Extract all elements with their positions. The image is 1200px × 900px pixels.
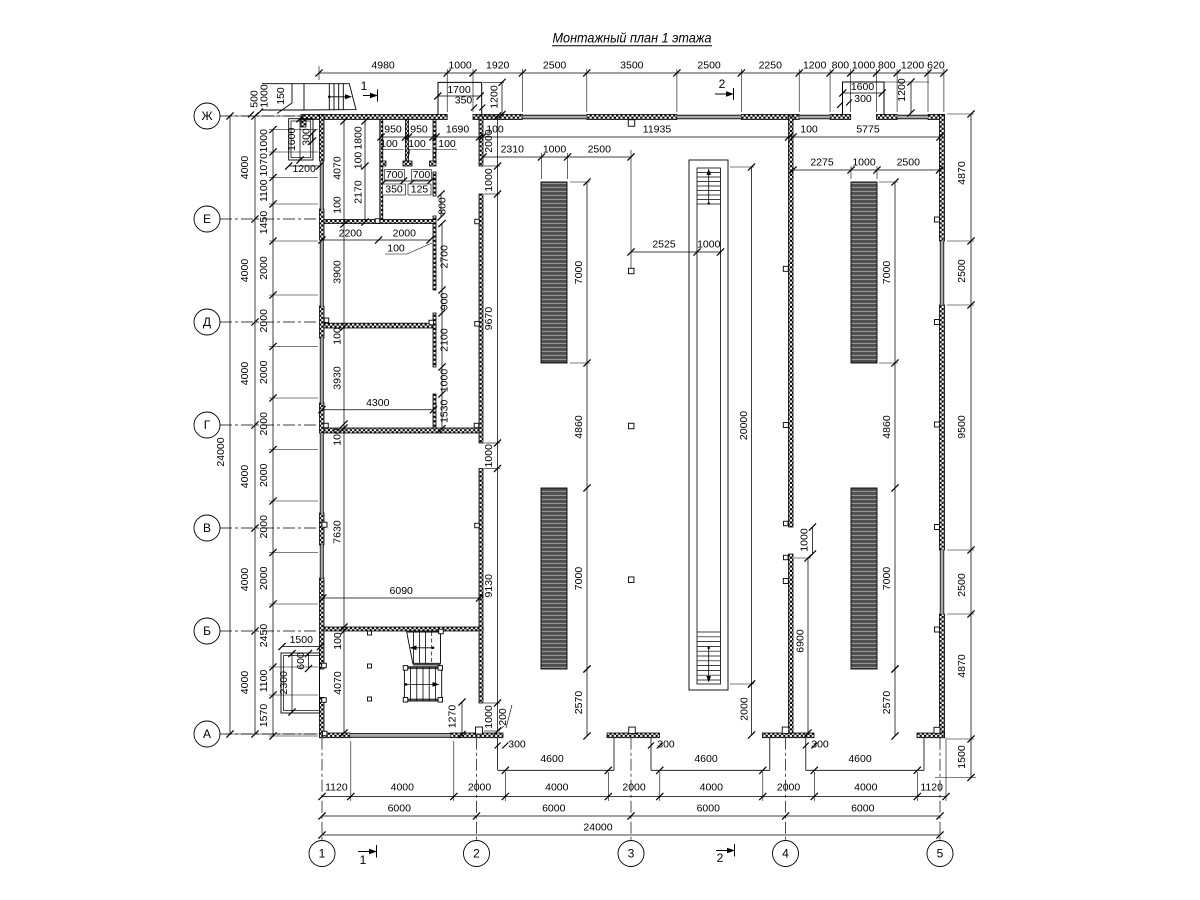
svg-text:600: 600 (295, 652, 307, 670)
svg-text:6090: 6090 (390, 585, 414, 597)
svg-text:5775: 5775 (856, 124, 880, 136)
svg-text:9130: 9130 (483, 574, 495, 598)
svg-text:2100: 2100 (439, 328, 451, 352)
svg-text:11935: 11935 (643, 124, 672, 136)
svg-text:1500: 1500 (290, 634, 314, 646)
svg-text:2700: 2700 (439, 245, 451, 269)
svg-text:100: 100 (438, 138, 456, 150)
svg-text:2570: 2570 (881, 691, 893, 715)
svg-text:1: 1 (319, 847, 326, 861)
svg-text:4600: 4600 (540, 753, 564, 765)
svg-text:800: 800 (832, 60, 850, 72)
svg-text:Д: Д (203, 315, 211, 329)
svg-text:300: 300 (811, 739, 829, 751)
svg-text:4870: 4870 (956, 654, 968, 678)
svg-text:2310: 2310 (501, 144, 525, 156)
svg-text:4000: 4000 (239, 671, 251, 695)
svg-text:1070: 1070 (258, 153, 270, 177)
svg-text:100: 100 (332, 632, 344, 650)
svg-text:1690: 1690 (446, 124, 470, 136)
svg-text:2170: 2170 (353, 180, 365, 204)
svg-text:9670: 9670 (483, 307, 495, 331)
svg-text:4300: 4300 (366, 397, 390, 409)
svg-text:1000: 1000 (852, 157, 876, 169)
svg-text:1600: 1600 (851, 81, 875, 93)
svg-text:Е: Е (203, 212, 211, 226)
svg-text:6000: 6000 (851, 803, 875, 815)
svg-text:300: 300 (657, 739, 675, 751)
svg-text:2000: 2000 (739, 697, 751, 721)
svg-text:1: 1 (360, 853, 367, 867)
svg-text:А: А (203, 727, 211, 741)
svg-text:7000: 7000 (881, 261, 893, 285)
svg-text:1000: 1000 (448, 60, 472, 72)
svg-text:1000: 1000 (483, 444, 495, 468)
svg-text:2500: 2500 (697, 60, 721, 72)
svg-text:1: 1 (361, 79, 368, 93)
svg-text:2450: 2450 (258, 624, 270, 648)
svg-text:2000: 2000 (777, 782, 801, 794)
svg-text:950: 950 (384, 124, 402, 136)
svg-text:1450: 1450 (258, 211, 270, 235)
svg-text:4000: 4000 (239, 156, 251, 180)
svg-text:1000: 1000 (483, 168, 495, 192)
svg-text:4: 4 (782, 847, 789, 861)
svg-text:2: 2 (473, 847, 480, 861)
svg-text:100: 100 (800, 124, 818, 136)
svg-text:6900: 6900 (795, 629, 807, 653)
svg-text:2: 2 (717, 851, 724, 865)
svg-text:6000: 6000 (697, 803, 721, 815)
svg-text:7000: 7000 (573, 261, 585, 285)
svg-text:2000: 2000 (483, 129, 495, 153)
svg-text:2: 2 (719, 77, 726, 91)
svg-text:2500: 2500 (588, 144, 612, 156)
svg-text:350: 350 (385, 184, 403, 196)
svg-text:2525: 2525 (652, 239, 676, 251)
svg-text:2000: 2000 (622, 782, 646, 794)
svg-text:700: 700 (413, 169, 431, 181)
svg-text:Монтажный план 1 этажа: Монтажный план 1 этажа (553, 30, 712, 46)
svg-text:800: 800 (878, 60, 896, 72)
svg-text:6000: 6000 (542, 803, 566, 815)
svg-text:2500: 2500 (897, 157, 921, 169)
svg-text:2000: 2000 (258, 360, 270, 384)
svg-text:1000: 1000 (543, 144, 567, 156)
svg-text:1200: 1200 (901, 60, 925, 72)
svg-text:7630: 7630 (332, 520, 344, 544)
svg-text:1920: 1920 (486, 60, 510, 72)
svg-text:9500: 9500 (956, 415, 968, 439)
svg-text:1200: 1200 (803, 60, 827, 72)
svg-text:1200: 1200 (896, 78, 908, 102)
svg-text:1000: 1000 (799, 528, 811, 552)
svg-text:4000: 4000 (391, 782, 415, 794)
svg-text:2275: 2275 (810, 157, 834, 169)
svg-text:2300: 2300 (278, 671, 290, 695)
svg-text:2250: 2250 (759, 60, 783, 72)
svg-text:1000: 1000 (258, 129, 270, 153)
svg-text:Б: Б (203, 624, 211, 638)
svg-text:2000: 2000 (258, 566, 270, 590)
svg-text:В: В (203, 521, 211, 535)
svg-text:100: 100 (332, 428, 344, 446)
svg-text:1000: 1000 (697, 239, 721, 251)
svg-text:2000: 2000 (258, 515, 270, 539)
svg-text:4870: 4870 (956, 161, 968, 185)
svg-text:100: 100 (353, 152, 365, 170)
svg-text:4000: 4000 (239, 465, 251, 489)
svg-text:24000: 24000 (215, 437, 227, 466)
svg-text:100: 100 (408, 138, 426, 150)
svg-text:2000: 2000 (258, 463, 270, 487)
svg-text:1800: 1800 (353, 126, 365, 150)
svg-text:620: 620 (927, 60, 945, 72)
svg-text:125: 125 (411, 184, 429, 196)
svg-text:2570: 2570 (573, 691, 585, 715)
svg-text:3500: 3500 (620, 60, 644, 72)
svg-text:150: 150 (275, 87, 287, 105)
svg-text:1270: 1270 (447, 705, 459, 729)
svg-text:4860: 4860 (573, 415, 585, 439)
svg-text:Ж: Ж (201, 109, 212, 123)
svg-text:300: 300 (854, 93, 872, 105)
svg-text:100: 100 (380, 138, 398, 150)
svg-text:100: 100 (332, 327, 344, 345)
svg-text:4980: 4980 (371, 60, 395, 72)
svg-text:1000: 1000 (259, 84, 271, 108)
svg-text:1530: 1530 (439, 400, 451, 424)
svg-text:4600: 4600 (694, 753, 718, 765)
svg-text:3: 3 (628, 847, 635, 861)
svg-text:1000: 1000 (483, 705, 495, 729)
svg-text:5: 5 (937, 847, 944, 861)
svg-text:700: 700 (386, 169, 404, 181)
svg-text:1500: 1500 (956, 745, 968, 769)
svg-text:2000: 2000 (258, 412, 270, 436)
svg-text:300: 300 (508, 739, 526, 751)
svg-text:2500: 2500 (956, 259, 968, 283)
svg-text:1120: 1120 (920, 782, 943, 794)
svg-text:1200: 1200 (292, 163, 316, 175)
svg-text:24000: 24000 (583, 822, 612, 834)
svg-text:900: 900 (439, 293, 451, 311)
svg-text:1570: 1570 (258, 704, 270, 728)
svg-text:100: 100 (387, 243, 405, 255)
svg-text:2000: 2000 (393, 228, 417, 240)
svg-text:7000: 7000 (573, 567, 585, 591)
svg-text:300: 300 (301, 128, 313, 146)
svg-text:4600: 4600 (848, 753, 872, 765)
svg-text:3930: 3930 (332, 366, 344, 390)
svg-text:1100: 1100 (258, 179, 270, 202)
svg-text:1120: 1120 (325, 782, 348, 794)
svg-text:350: 350 (455, 95, 473, 107)
svg-text:3900: 3900 (332, 260, 344, 284)
svg-text:4000: 4000 (545, 782, 569, 794)
svg-text:2200: 2200 (339, 228, 363, 240)
svg-text:7000: 7000 (881, 567, 893, 591)
svg-text:4000: 4000 (239, 568, 251, 592)
svg-text:4860: 4860 (881, 415, 893, 439)
svg-text:4000: 4000 (239, 362, 251, 386)
svg-text:1600: 1600 (286, 128, 298, 152)
svg-text:800: 800 (437, 197, 449, 215)
svg-text:4000: 4000 (700, 782, 724, 794)
svg-text:4070: 4070 (332, 156, 344, 180)
svg-text:2000: 2000 (258, 309, 270, 333)
svg-text:2500: 2500 (543, 60, 567, 72)
svg-text:2000: 2000 (258, 256, 270, 280)
svg-text:100: 100 (332, 196, 344, 214)
svg-text:1100: 1100 (258, 670, 270, 693)
svg-text:2000: 2000 (468, 782, 492, 794)
svg-text:Г: Г (204, 418, 211, 432)
svg-text:6000: 6000 (388, 803, 412, 815)
svg-text:1000: 1000 (852, 60, 876, 72)
svg-text:1200: 1200 (489, 85, 501, 109)
svg-text:2500: 2500 (956, 573, 968, 597)
svg-text:4000: 4000 (854, 782, 878, 794)
svg-text:4000: 4000 (239, 259, 251, 283)
svg-text:4070: 4070 (332, 671, 344, 695)
svg-text:1000: 1000 (439, 369, 451, 393)
svg-text:950: 950 (410, 124, 428, 136)
svg-text:20000: 20000 (738, 411, 750, 440)
